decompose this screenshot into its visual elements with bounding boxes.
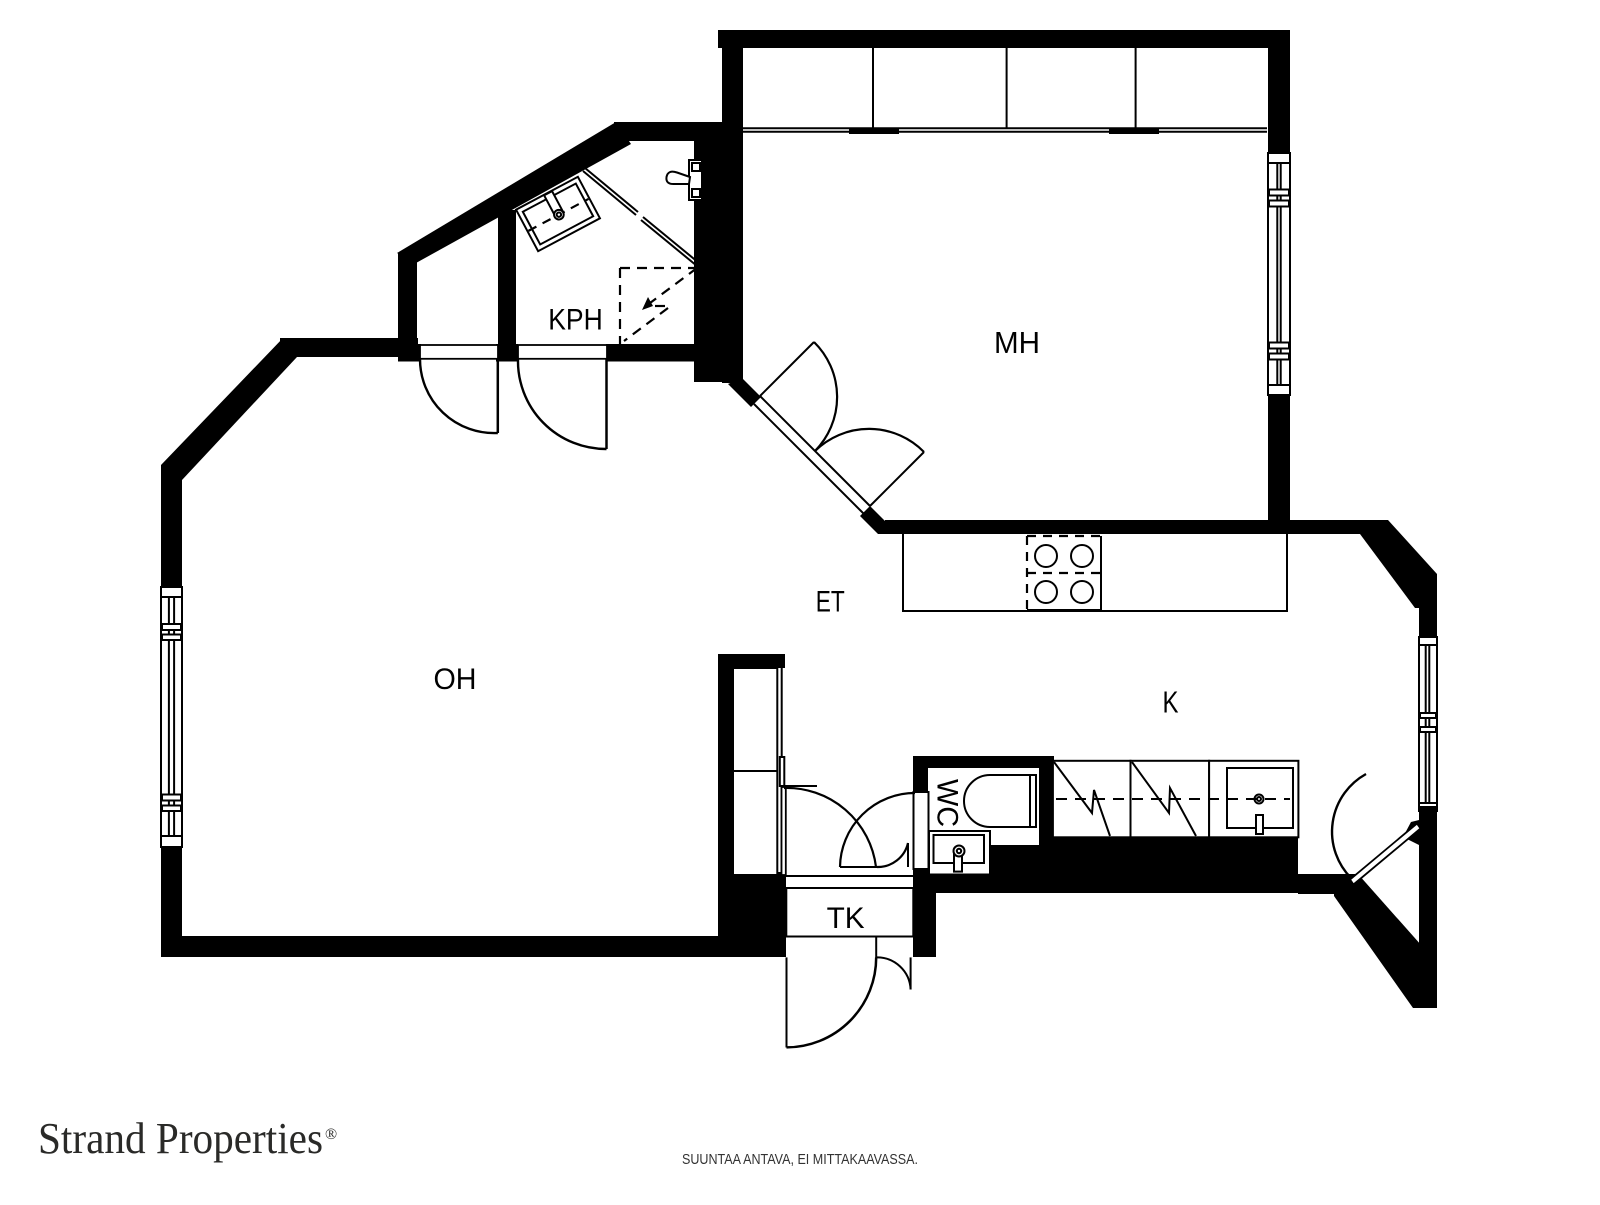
svg-text:Strand Properties: Strand Properties [38,1114,323,1163]
svg-text:TK: TK [827,902,865,935]
svg-text:WC: WC [931,779,964,827]
svg-text:ET: ET [816,585,845,618]
svg-text:®: ® [325,1126,337,1143]
svg-text:KPH: KPH [548,304,603,337]
svg-text:SUUNTAA ANTAVA, EI MITTAKAAVAS: SUUNTAA ANTAVA, EI MITTAKAAVASSA. [682,1152,918,1168]
svg-text:MH: MH [994,325,1040,360]
svg-text:OH: OH [434,663,477,696]
svg-text:K: K [1163,685,1179,720]
